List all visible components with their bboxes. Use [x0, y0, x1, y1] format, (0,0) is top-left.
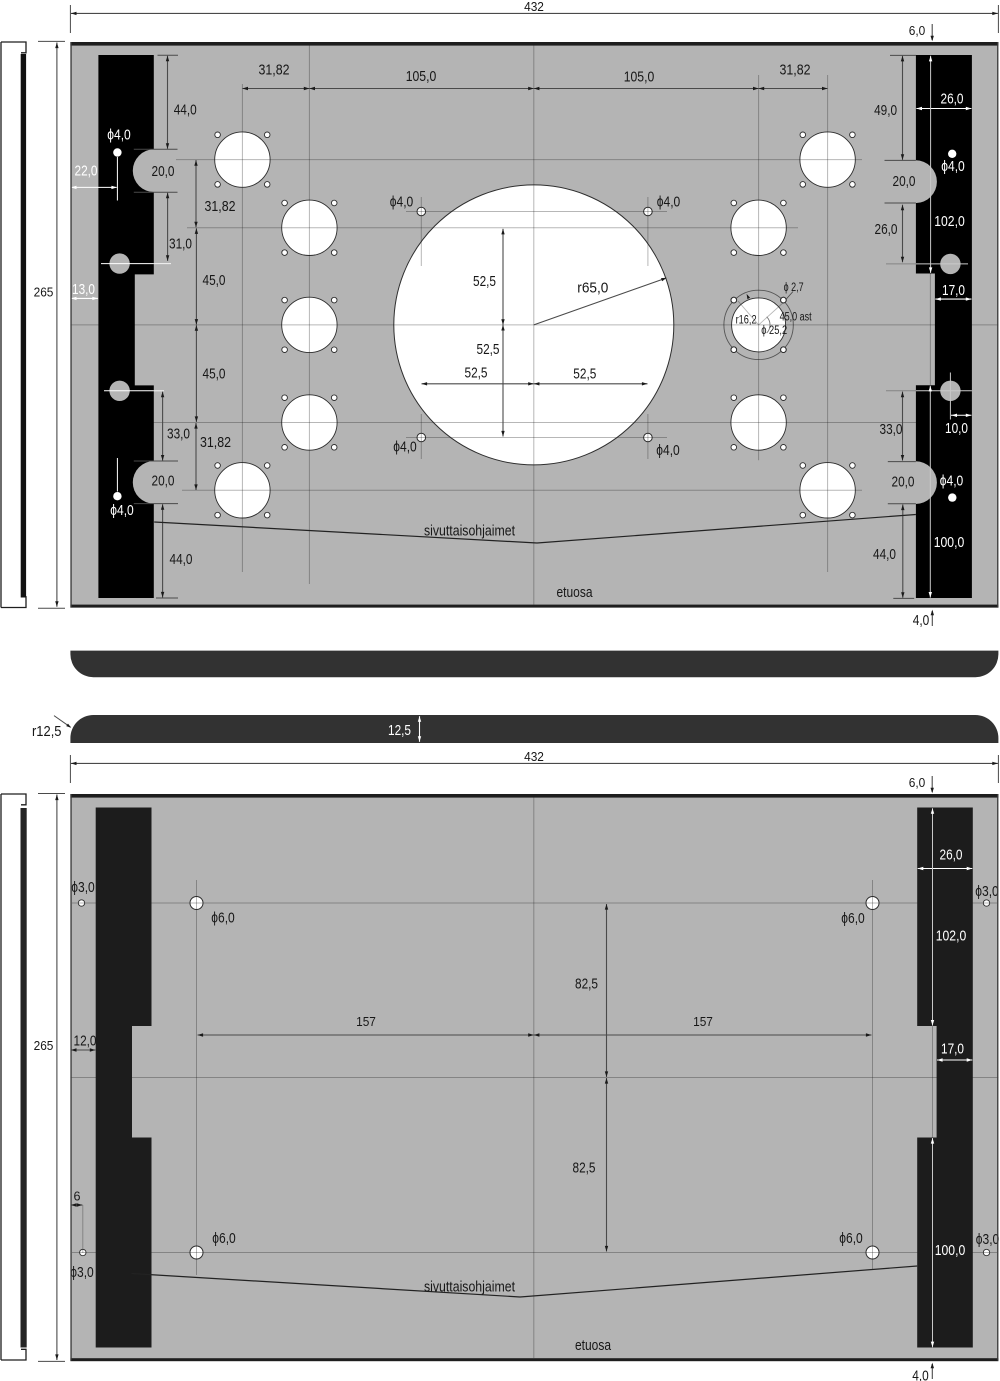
svg-text:ϕ6,0: ϕ6,0 [211, 910, 235, 927]
svg-text:52,5: 52,5 [465, 365, 488, 382]
svg-text:26,0: 26,0 [940, 847, 963, 864]
svg-text:44,0: 44,0 [873, 546, 896, 563]
svg-text:6,0: 6,0 [909, 776, 926, 790]
svg-text:ϕ6,0: ϕ6,0 [839, 1230, 863, 1247]
svg-text:sivuttaisohjaimet: sivuttaisohjaimet [424, 1279, 516, 1296]
svg-text:ϕ3,0: ϕ3,0 [975, 883, 999, 900]
svg-text:12,0: 12,0 [74, 1033, 97, 1050]
svg-text:31,82: 31,82 [200, 434, 231, 451]
svg-text:52,5: 52,5 [573, 366, 596, 383]
svg-text:31,82: 31,82 [780, 62, 811, 79]
svg-text:157: 157 [693, 1015, 713, 1029]
svg-text:49,0: 49,0 [874, 102, 897, 119]
svg-text:102,0: 102,0 [936, 928, 967, 945]
svg-text:r16,2: r16,2 [736, 315, 757, 327]
svg-text:ϕ 25,2: ϕ 25,2 [761, 325, 787, 337]
svg-text:100,0: 100,0 [935, 1242, 966, 1259]
svg-text:105,0: 105,0 [406, 68, 437, 85]
svg-text:45,0: 45,0 [203, 366, 226, 383]
svg-text:17,0: 17,0 [941, 1041, 964, 1058]
svg-text:ϕ3,0: ϕ3,0 [70, 1264, 94, 1281]
svg-text:ϕ4,0: ϕ4,0 [656, 442, 680, 459]
svg-text:20,0: 20,0 [893, 173, 916, 190]
svg-text:20,0: 20,0 [892, 474, 915, 491]
svg-text:sivuttaisohjaimet: sivuttaisohjaimet [424, 523, 516, 540]
svg-text:r65,0: r65,0 [577, 280, 608, 297]
svg-text:4,0: 4,0 [913, 612, 930, 629]
svg-text:157: 157 [356, 1015, 376, 1029]
svg-text:44,0: 44,0 [170, 551, 193, 568]
svg-text:12,5: 12,5 [388, 722, 411, 739]
svg-text:r12,5: r12,5 [32, 723, 62, 740]
svg-text:45,0 ast: 45,0 ast [780, 312, 813, 324]
svg-text:ϕ3,0: ϕ3,0 [71, 879, 95, 896]
svg-text:432: 432 [524, 750, 544, 764]
svg-text:45,0: 45,0 [203, 272, 226, 289]
svg-text:52,5: 52,5 [477, 341, 500, 358]
svg-text:ϕ4,0: ϕ4,0 [390, 194, 414, 211]
svg-text:20,0: 20,0 [152, 163, 175, 180]
svg-text:31,82: 31,82 [205, 198, 236, 215]
svg-text:ϕ3,0: ϕ3,0 [976, 1231, 1000, 1248]
svg-text:4,0: 4,0 [912, 1368, 929, 1381]
svg-text:82,5: 82,5 [575, 976, 598, 993]
svg-text:ϕ4,0: ϕ4,0 [657, 194, 681, 211]
svg-text:102,0: 102,0 [934, 213, 965, 230]
svg-text:etuosa: etuosa [557, 584, 594, 601]
svg-text:33,0: 33,0 [167, 426, 190, 443]
svg-text:265: 265 [34, 286, 54, 300]
svg-text:ϕ 2,7: ϕ 2,7 [784, 282, 804, 294]
svg-text:ϕ6,0: ϕ6,0 [841, 910, 865, 927]
svg-text:52,5: 52,5 [473, 273, 496, 290]
svg-text:31,0: 31,0 [169, 236, 192, 253]
svg-text:10,0: 10,0 [945, 420, 968, 437]
svg-text:ϕ6,0: ϕ6,0 [212, 1230, 236, 1247]
svg-text:6,0: 6,0 [909, 24, 926, 38]
svg-text:432: 432 [524, 0, 544, 14]
svg-text:ϕ4,0: ϕ4,0 [393, 439, 417, 456]
svg-text:ϕ4,0: ϕ4,0 [110, 502, 134, 519]
svg-text:105,0: 105,0 [624, 69, 655, 86]
svg-text:17,0: 17,0 [942, 282, 965, 299]
svg-text:44,0: 44,0 [174, 102, 197, 119]
svg-text:13,0: 13,0 [72, 281, 95, 298]
svg-text:31,82: 31,82 [259, 62, 290, 79]
svg-text:265: 265 [34, 1039, 54, 1053]
svg-text:26,0: 26,0 [941, 91, 964, 108]
svg-text:ϕ4,0: ϕ4,0 [940, 473, 964, 490]
svg-text:26,0: 26,0 [875, 221, 898, 238]
svg-text:20,0: 20,0 [152, 473, 175, 490]
svg-text:100,0: 100,0 [934, 534, 965, 551]
svg-text:6: 6 [74, 1190, 81, 1204]
svg-text:etuosa: etuosa [575, 1337, 612, 1354]
svg-text:82,5: 82,5 [573, 1160, 596, 1177]
svg-text:33,0: 33,0 [880, 421, 903, 438]
svg-text:ϕ4,0: ϕ4,0 [941, 158, 965, 175]
svg-text:ϕ4,0: ϕ4,0 [107, 127, 131, 144]
svg-text:22,0: 22,0 [75, 163, 98, 180]
